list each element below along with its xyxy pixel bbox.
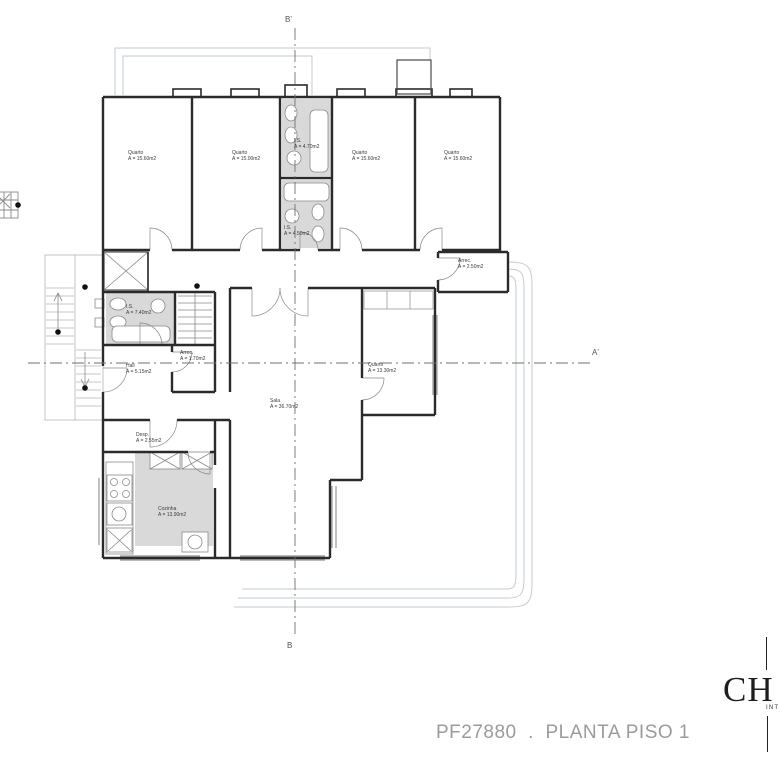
logo-rule-top — [766, 637, 767, 670]
room-label-quarto-4: Quarto A = 15.60m2 — [444, 150, 472, 162]
svg-text:A = 15.60m2: A = 15.60m2 — [128, 156, 156, 162]
logo-rule-bottom — [767, 716, 768, 752]
section-marker-b-bottom: B — [287, 641, 292, 650]
section-marker-a-right: A' — [592, 348, 599, 357]
svg-text:A = 2.50m2: A = 2.50m2 — [458, 264, 484, 270]
svg-text:A = 2.55m2: A = 2.55m2 — [136, 438, 162, 444]
svg-text:A = 36.70m2: A = 36.70m2 — [270, 404, 298, 410]
svg-text:A = 7.40m2: A = 7.40m2 — [126, 310, 152, 316]
room-label-quarto-2: Quarto A = 15.00m2 — [232, 150, 260, 162]
svg-text:A = 13.30m2: A = 13.30m2 — [368, 368, 396, 374]
room-label-arrec-2: Arrec. A = 1.70m2 — [180, 350, 206, 362]
room-label-quarto-5: Quarto A = 13.30m2 — [368, 362, 396, 374]
room-label-quarto-1: Quarto A = 15.60m2 — [128, 150, 156, 162]
svg-text:A = 15.60m2: A = 15.60m2 — [352, 156, 380, 162]
svg-text:A = 13.90m2: A = 13.90m2 — [158, 512, 186, 518]
common-stair — [45, 255, 103, 420]
svg-text:A = 5.15m2: A = 5.15m2 — [126, 369, 152, 375]
drawing-title: PF27880 . PLANTA PISO 1 — [436, 722, 690, 744]
room-label-hall: Hall A = 5.15m2 — [126, 363, 152, 375]
logo-subtext: INT — [766, 705, 779, 711]
closet-lines — [364, 291, 433, 309]
floor-plan-canvas: B' B A' Quarto A = 15.60m2 Quarto A = 15… — [0, 0, 780, 780]
section-marker-b-top: B' — [285, 15, 292, 24]
room-fills — [106, 99, 331, 546]
logo-wordmark: CH — [723, 670, 774, 710]
room-label-sala: Sala A = 36.70m2 — [270, 398, 298, 410]
svg-text:A = 1.70m2: A = 1.70m2 — [180, 356, 206, 362]
room-label-arrec-1: Arrec. A = 2.50m2 — [458, 258, 484, 270]
private-stair — [178, 292, 212, 345]
room-label-desp: Desp. A = 2.55m2 — [136, 432, 162, 444]
svg-text:A = 4.50m2: A = 4.50m2 — [284, 231, 310, 237]
svg-text:A = 15.60m2: A = 15.60m2 — [444, 156, 472, 162]
elevator-shaft — [104, 252, 148, 290]
svg-text:A = 4.70m2: A = 4.70m2 — [294, 144, 320, 150]
room-label-quarto-3: Quarto A = 15.60m2 — [352, 150, 380, 162]
svg-text:A = 15.00m2: A = 15.00m2 — [232, 156, 260, 162]
